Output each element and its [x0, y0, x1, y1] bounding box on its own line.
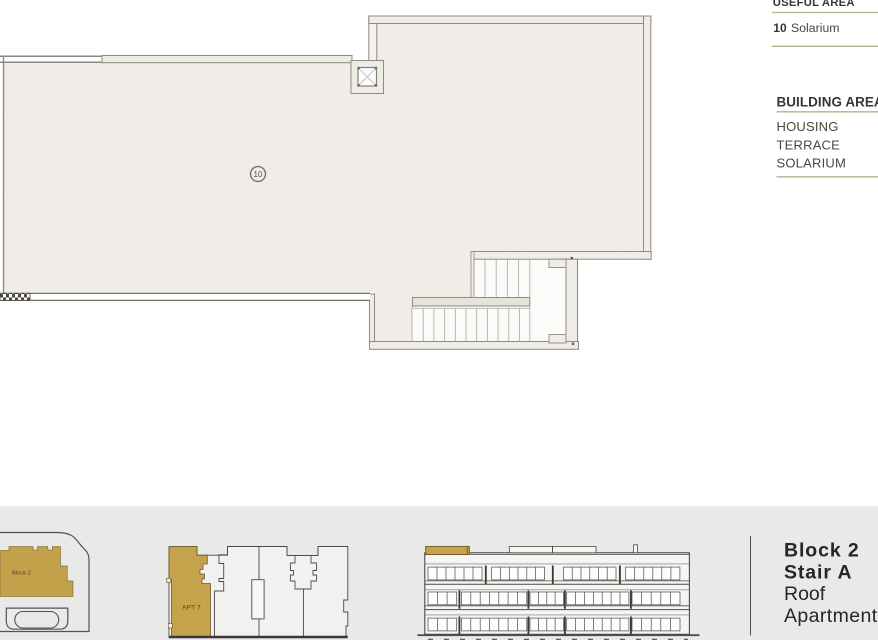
svg-text:Solarium: Solarium	[791, 21, 840, 35]
svg-text:APT 7: APT 7	[182, 605, 201, 612]
svg-text:BUILDING AREA: BUILDING AREA	[777, 95, 878, 110]
svg-text:Apartment: Apartment	[784, 605, 878, 627]
svg-text:HOUSING: HOUSING	[777, 119, 839, 134]
svg-text:TERRACE: TERRACE	[777, 138, 841, 153]
svg-text:Block 2: Block 2	[784, 540, 860, 562]
svg-text:SOLARIUM: SOLARIUM	[777, 156, 847, 171]
svg-text:Stair A: Stair A	[784, 561, 852, 583]
svg-text:10: 10	[254, 170, 263, 179]
svg-text:USEFUL AREA: USEFUL AREA	[773, 0, 855, 9]
svg-text:Block 2: Block 2	[12, 571, 31, 577]
svg-text:Roof: Roof	[784, 583, 826, 605]
svg-text:10: 10	[773, 21, 787, 35]
